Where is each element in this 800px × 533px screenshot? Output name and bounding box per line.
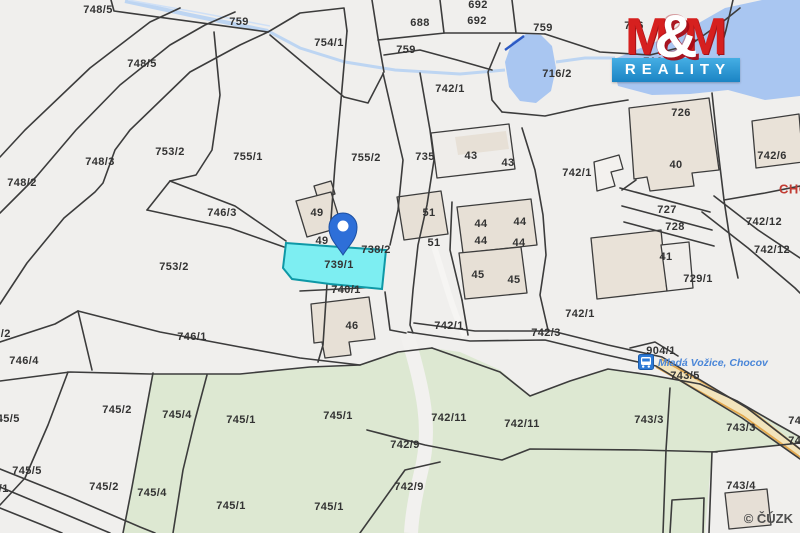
attribution-cuzk: © ČÚZK [744,511,793,526]
logo-mm-row: M & M [612,10,740,64]
location-pin-icon[interactable] [325,203,365,259]
greenery-areas [123,348,800,533]
bus-stop-icon [638,354,654,370]
map-canvas[interactable]: 748/5759754/1759688692692748/5759716/274… [0,0,800,533]
bus-stop-marker: Mladá Vožice, Chocov [638,354,768,370]
bus-stop-name: Mladá Vožice, Chocov [658,357,768,369]
logo-ampersand: & [654,7,697,67]
mm-reality-logo: M & M REALITY [612,10,740,82]
